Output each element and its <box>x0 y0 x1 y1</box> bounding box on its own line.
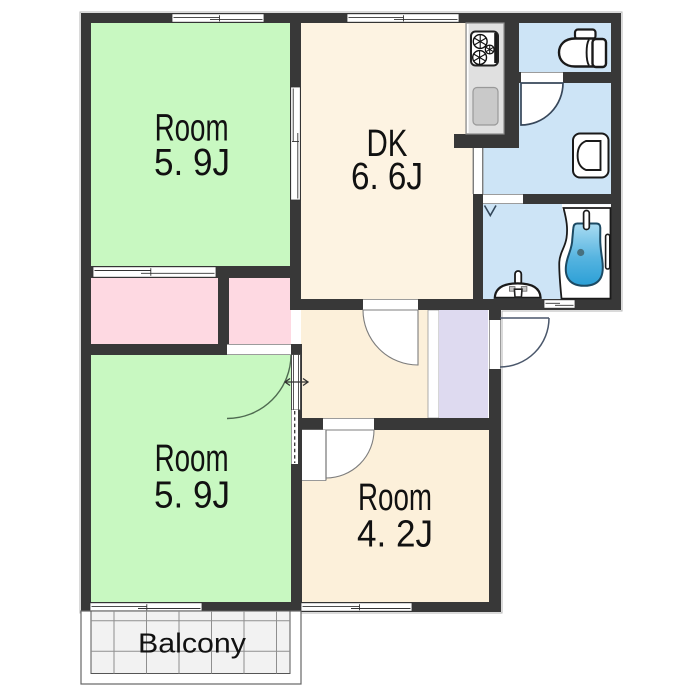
svg-text:Balcony: Balcony <box>138 628 246 659</box>
svg-text:5. 9J: 5. 9J <box>154 142 230 184</box>
svg-text:4. 2J: 4. 2J <box>357 514 433 556</box>
svg-text:5. 9J: 5. 9J <box>154 475 230 517</box>
svg-text:6. 6J: 6. 6J <box>351 156 423 198</box>
